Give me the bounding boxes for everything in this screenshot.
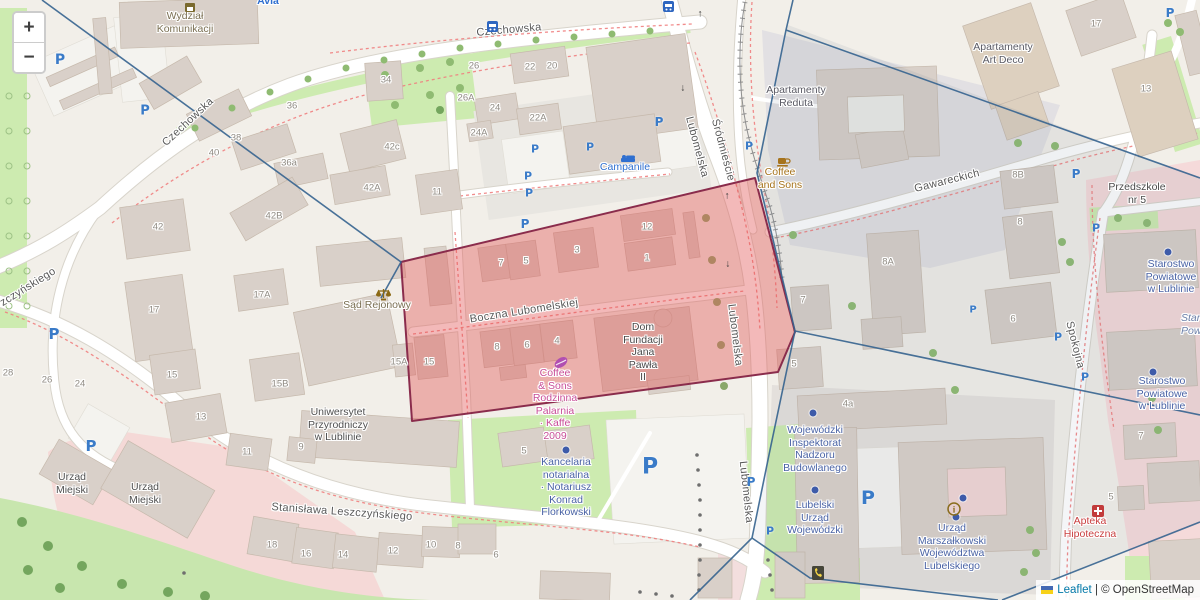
zoom-control: + − [12, 11, 46, 74]
map-canvas[interactable]: CzechowskaCzechowskaLubomelskaŚródmieści… [0, 0, 1200, 600]
attribution-separator: | [1092, 584, 1101, 596]
map-tiles [0, 0, 1200, 600]
leaflet-link[interactable]: Leaflet [1057, 584, 1092, 596]
zoom-out-button[interactable]: − [14, 43, 44, 72]
openstreetmap-link[interactable]: © OpenStreetMap [1101, 584, 1194, 596]
ukraine-flag-icon [1041, 586, 1053, 594]
zoom-in-button[interactable]: + [14, 13, 44, 43]
attribution-bar: Leaflet | © OpenStreetMap [1036, 580, 1200, 600]
